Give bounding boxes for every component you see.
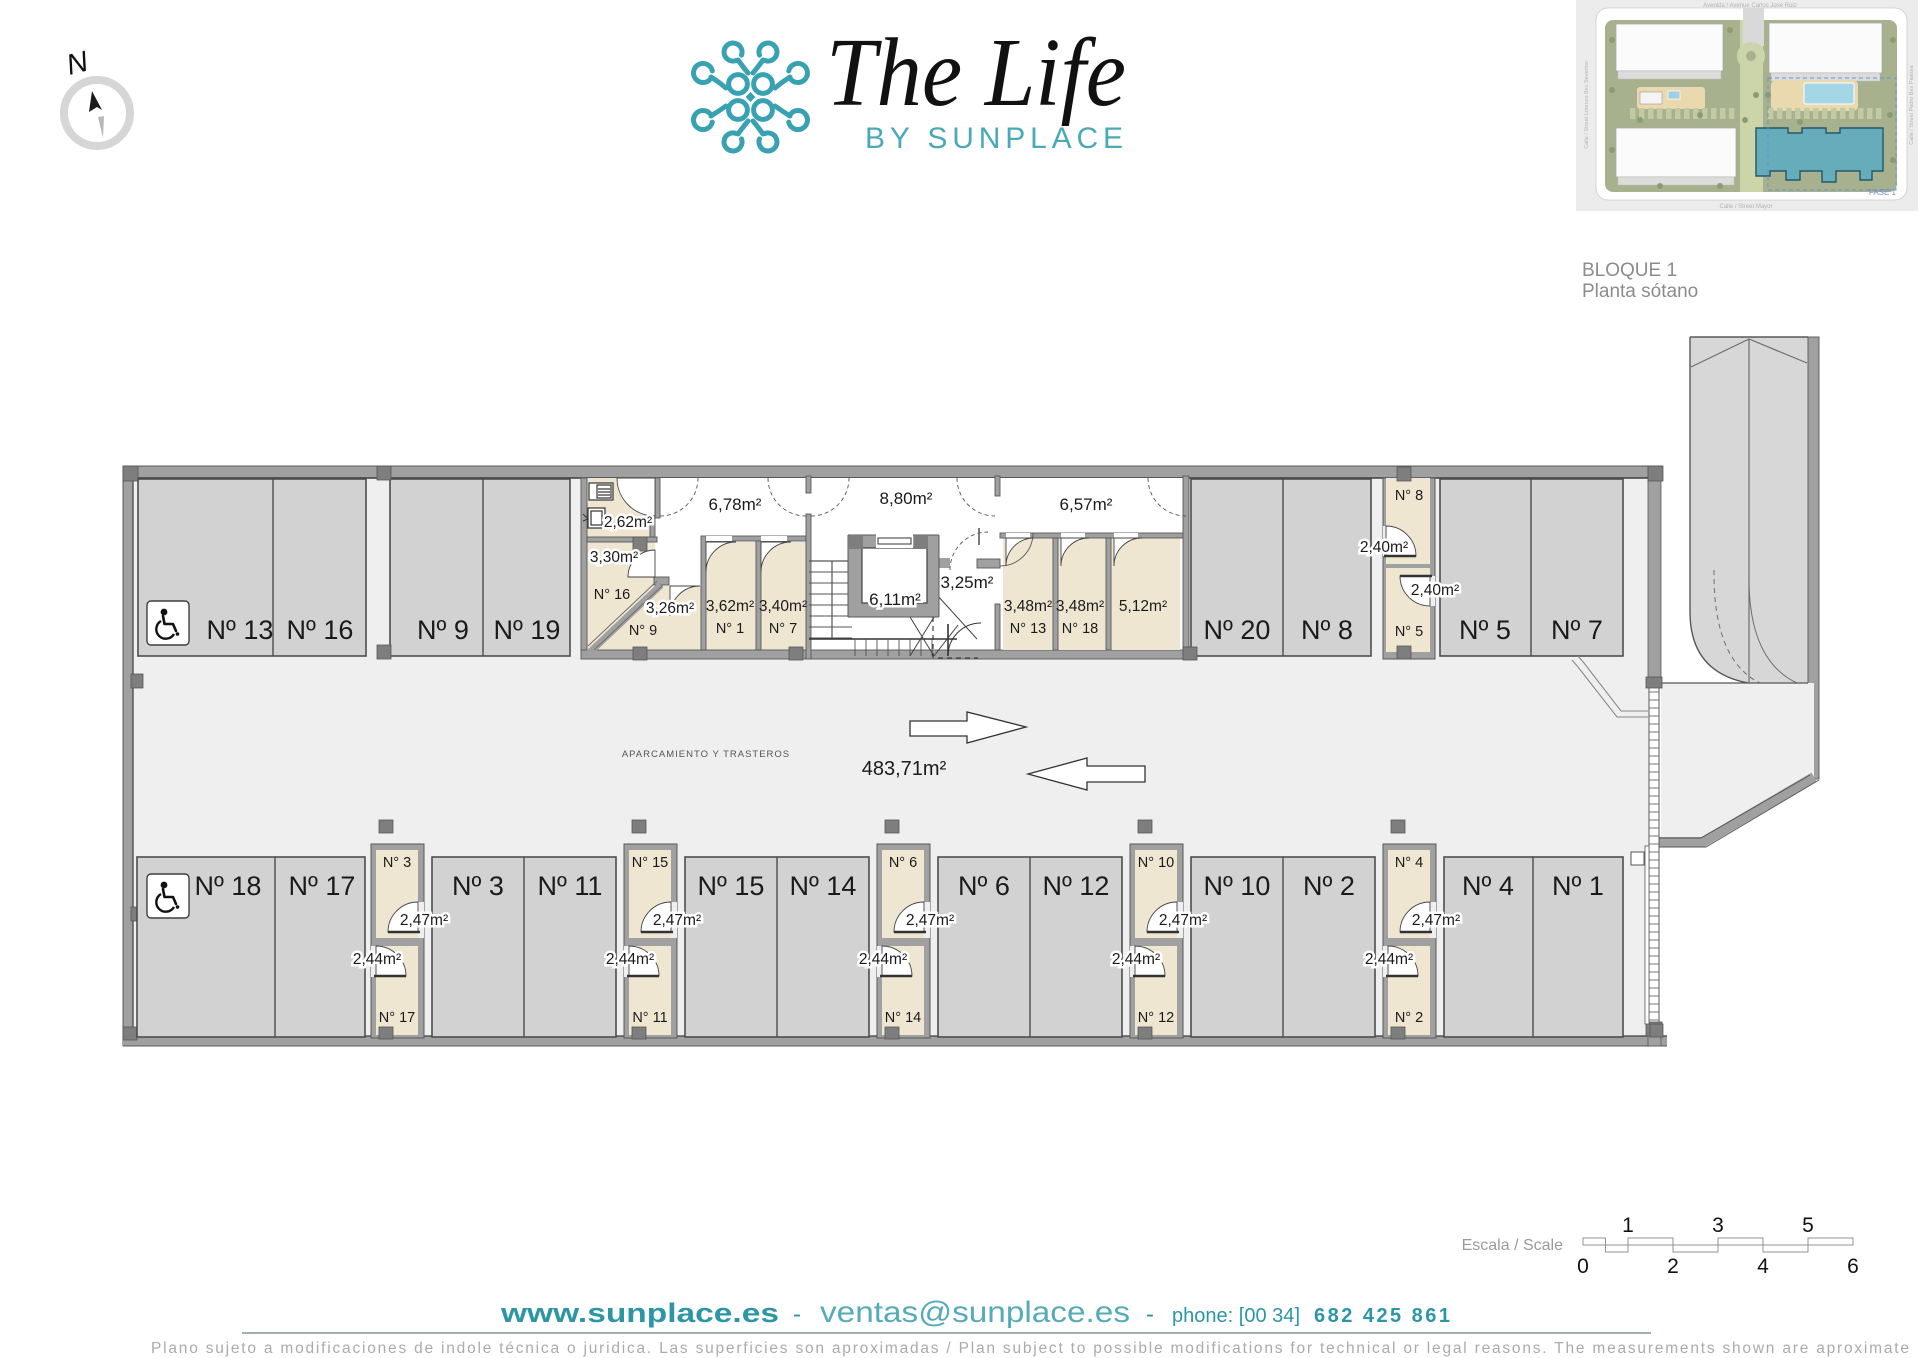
svg-text:-: - (1146, 1301, 1154, 1328)
svg-text:2,47m²: 2,47m² (906, 912, 954, 929)
svg-text:3,26m²: 3,26m² (646, 600, 694, 617)
svg-text:3,62m²: 3,62m² (706, 598, 754, 615)
svg-text:N° 13: N° 13 (1010, 621, 1046, 637)
svg-text:2,40m²: 2,40m² (1360, 539, 1408, 556)
svg-text:Nº 1: Nº 1 (1552, 871, 1604, 901)
svg-text:Nº 7: Nº 7 (1551, 615, 1603, 645)
svg-text:N° 3: N° 3 (383, 855, 411, 871)
svg-text:2,47m²: 2,47m² (1412, 912, 1460, 929)
svg-text:N° 16: N° 16 (594, 587, 630, 603)
svg-text:N° 17: N° 17 (379, 1010, 415, 1026)
svg-text:Nº 4: Nº 4 (1462, 871, 1514, 901)
svg-text:3,30m²: 3,30m² (590, 549, 638, 566)
svg-text:Nº 17: Nº 17 (289, 871, 356, 901)
svg-text:2,44m²: 2,44m² (859, 951, 907, 968)
svg-text:Nº 14: Nº 14 (790, 871, 857, 901)
svg-text:ventas@sunplace.es: ventas@sunplace.es (820, 1296, 1130, 1329)
svg-text:3,48m²: 3,48m² (1004, 598, 1052, 615)
svg-text:N° 7: N° 7 (769, 621, 797, 637)
svg-text:8,80m²: 8,80m² (880, 489, 933, 508)
svg-text:Nº 16: Nº 16 (287, 615, 354, 645)
svg-text:6,57m²: 6,57m² (1060, 495, 1113, 514)
svg-text:N° 4: N° 4 (1395, 855, 1423, 871)
svg-text:N° 12: N° 12 (1138, 1010, 1174, 1026)
svg-text:N° 9: N° 9 (629, 623, 657, 639)
svg-text:2,40m²: 2,40m² (1411, 582, 1459, 599)
svg-text:BY SUNPLACE: BY SUNPLACE (865, 122, 1123, 155)
svg-text:Calle / Street Pedro Bex Past: Calle / Street Pedro Bex Pastora (1909, 64, 1915, 144)
svg-text:2,47m²: 2,47m² (653, 912, 701, 929)
svg-text:Calle / Street Mayor: Calle / Street Mayor (1719, 204, 1772, 210)
svg-text:-: - (793, 1301, 801, 1328)
svg-text:2,62m²: 2,62m² (604, 514, 652, 531)
svg-text:Plano sujeto a modificaciones: Plano sujeto a modificaciones de indole … (151, 1340, 1909, 1357)
svg-text:3: 3 (1712, 1214, 1724, 1237)
svg-text:6,11m²: 6,11m² (869, 590, 921, 609)
svg-text:N° 1: N° 1 (716, 621, 744, 637)
svg-text:2,44m²: 2,44m² (353, 951, 401, 968)
svg-text:www.sunplace.es: www.sunplace.es (500, 1298, 779, 1328)
svg-text:Planta sótano: Planta sótano (1582, 281, 1698, 302)
svg-text:3,48m²: 3,48m² (1056, 598, 1104, 615)
svg-text:6: 6 (1847, 1255, 1859, 1278)
svg-text:Nº 2: Nº 2 (1303, 871, 1355, 901)
svg-text:BLOQUE 1: BLOQUE 1 (1582, 260, 1677, 281)
svg-text:1: 1 (1622, 1214, 1634, 1237)
svg-text:Nº 12: Nº 12 (1043, 871, 1110, 901)
svg-text:N° 14: N° 14 (885, 1010, 921, 1026)
svg-text:phone: [00 34]: phone: [00 34] (1172, 1305, 1300, 1327)
svg-text:N° 15: N° 15 (632, 855, 668, 871)
svg-text:2,44m²: 2,44m² (606, 951, 654, 968)
svg-text:APARCAMIENTO Y TRASTEROS: APARCAMIENTO Y TRASTEROS (622, 749, 790, 760)
svg-text:N: N (63, 46, 91, 82)
svg-text:N° 6: N° 6 (889, 855, 917, 871)
svg-text:Nº 6: Nº 6 (958, 871, 1010, 901)
svg-text:Nº 11: Nº 11 (538, 871, 603, 901)
svg-text:N° 10: N° 10 (1138, 855, 1174, 871)
svg-text:Nº 18: Nº 18 (195, 871, 262, 901)
svg-text:Calle / Street Lorenzo Bex Se: Calle / Street Lorenzo Bex Severino (1584, 61, 1590, 148)
svg-text:0: 0 (1577, 1255, 1589, 1278)
svg-text:Nº 8: Nº 8 (1301, 615, 1353, 645)
svg-text:Nº 10: Nº 10 (1204, 871, 1271, 901)
svg-text:483,71m²: 483,71m² (862, 758, 947, 780)
svg-text:4: 4 (1757, 1255, 1769, 1278)
svg-text:Escala / Scale: Escala / Scale (1462, 1237, 1563, 1254)
svg-text:5,12m²: 5,12m² (1119, 598, 1167, 615)
svg-text:2,47m²: 2,47m² (400, 912, 448, 929)
svg-text:Nº 13: Nº 13 (207, 615, 274, 645)
svg-text:Avenida / Avenue Carlos Jose: Avenida / Avenue Carlos Jose Ruiz (1703, 3, 1797, 9)
svg-text:N° 8: N° 8 (1395, 488, 1423, 504)
svg-text:2: 2 (1667, 1255, 1679, 1278)
svg-text:5: 5 (1802, 1214, 1814, 1237)
svg-text:Nº 9: Nº 9 (417, 615, 469, 645)
svg-text:3,40m²: 3,40m² (759, 598, 807, 615)
svg-text:N° 5: N° 5 (1395, 624, 1423, 640)
svg-text:N° 18: N° 18 (1062, 621, 1098, 637)
svg-text:Nº 15: Nº 15 (698, 871, 765, 901)
svg-text:N° 11: N° 11 (632, 1010, 667, 1026)
svg-text:Nº 3: Nº 3 (452, 871, 504, 901)
svg-text:Nº 20: Nº 20 (1204, 615, 1271, 645)
svg-text:The Life: The Life (826, 19, 1126, 126)
svg-text:6,78m²: 6,78m² (709, 495, 762, 514)
svg-text:2,44m²: 2,44m² (1112, 951, 1160, 968)
svg-text:682 425 861: 682 425 861 (1314, 1305, 1450, 1327)
svg-text:2,44m²: 2,44m² (1365, 951, 1413, 968)
svg-text:FASE 1: FASE 1 (1869, 188, 1897, 197)
svg-text:2,47m²: 2,47m² (1159, 912, 1207, 929)
svg-text:N° 2: N° 2 (1395, 1010, 1423, 1026)
svg-text:Nº 5: Nº 5 (1459, 615, 1511, 645)
svg-text:Nº 19: Nº 19 (494, 615, 561, 645)
svg-text:3,25m²: 3,25m² (941, 573, 994, 592)
